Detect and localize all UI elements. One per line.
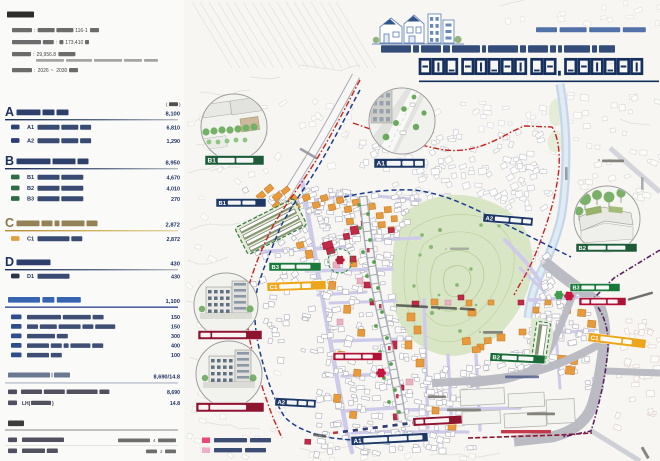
svg-text:A2: A2 [485, 216, 494, 223]
svg-text:C1: C1 [590, 335, 599, 343]
svg-text:2: 2 [160, 449, 163, 454]
svg-text:270: 270 [171, 197, 180, 203]
svg-text:B2: B2 [27, 186, 34, 192]
svg-text:2026: 2026 [38, 68, 49, 74]
svg-text:D: D [5, 255, 14, 269]
svg-text:150: 150 [171, 325, 180, 331]
svg-text:6,810: 6,810 [167, 126, 181, 132]
svg-text:C1: C1 [27, 237, 34, 243]
svg-text:A: A [5, 105, 14, 119]
svg-text:8,690: 8,690 [167, 390, 180, 396]
svg-text:2,872: 2,872 [167, 237, 181, 243]
svg-text:14.8: 14.8 [170, 401, 180, 407]
svg-text:B1: B1 [219, 201, 227, 207]
svg-text:100: 100 [171, 353, 180, 359]
svg-text:C: C [5, 216, 14, 230]
svg-text:D1: D1 [27, 274, 34, 280]
svg-text:B3: B3 [573, 286, 580, 292]
svg-text:173,410: 173,410 [65, 40, 83, 46]
svg-text:B3: B3 [27, 197, 34, 203]
svg-text:A1: A1 [353, 438, 362, 445]
svg-text:4,010: 4,010 [167, 187, 181, 193]
svg-text:LH(: LH( [22, 401, 31, 407]
svg-text:2030: 2030 [56, 68, 67, 74]
svg-text::: : [34, 28, 35, 34]
svg-text:B1: B1 [208, 158, 217, 165]
svg-text:8,950: 8,950 [165, 161, 180, 167]
svg-text:150: 150 [171, 315, 180, 321]
svg-text::: : [34, 68, 35, 74]
svg-text:8,100: 8,100 [165, 112, 180, 118]
svg-text:B2: B2 [579, 246, 587, 252]
svg-text:4: 4 [153, 438, 156, 443]
svg-text:8,690/14.8: 8,690/14.8 [154, 375, 180, 381]
svg-text:B1: B1 [27, 175, 34, 181]
svg-text:A1: A1 [377, 161, 386, 168]
svg-text:C1: C1 [269, 284, 278, 291]
svg-text:430: 430 [171, 275, 180, 281]
svg-text:300: 300 [171, 334, 180, 340]
svg-text:116-1: 116-1 [75, 28, 88, 34]
svg-text::: : [33, 52, 34, 58]
svg-text:2,872: 2,872 [165, 223, 180, 229]
svg-text:B3: B3 [272, 265, 280, 271]
svg-text:400: 400 [171, 344, 180, 350]
svg-text:B2: B2 [492, 355, 501, 361]
svg-text:A2: A2 [27, 139, 34, 145]
svg-text:29,956.8: 29,956.8 [37, 52, 57, 58]
svg-text:A1: A1 [27, 125, 34, 131]
svg-text:1,100: 1,100 [165, 299, 180, 305]
svg-text:B: B [5, 154, 14, 168]
svg-text:A2: A2 [277, 400, 286, 406]
svg-text::: : [56, 40, 57, 46]
svg-text:430: 430 [170, 262, 180, 268]
svg-text:~: ~ [50, 68, 53, 74]
svg-text:1,290: 1,290 [167, 139, 181, 145]
svg-text:4,670: 4,670 [167, 176, 181, 182]
